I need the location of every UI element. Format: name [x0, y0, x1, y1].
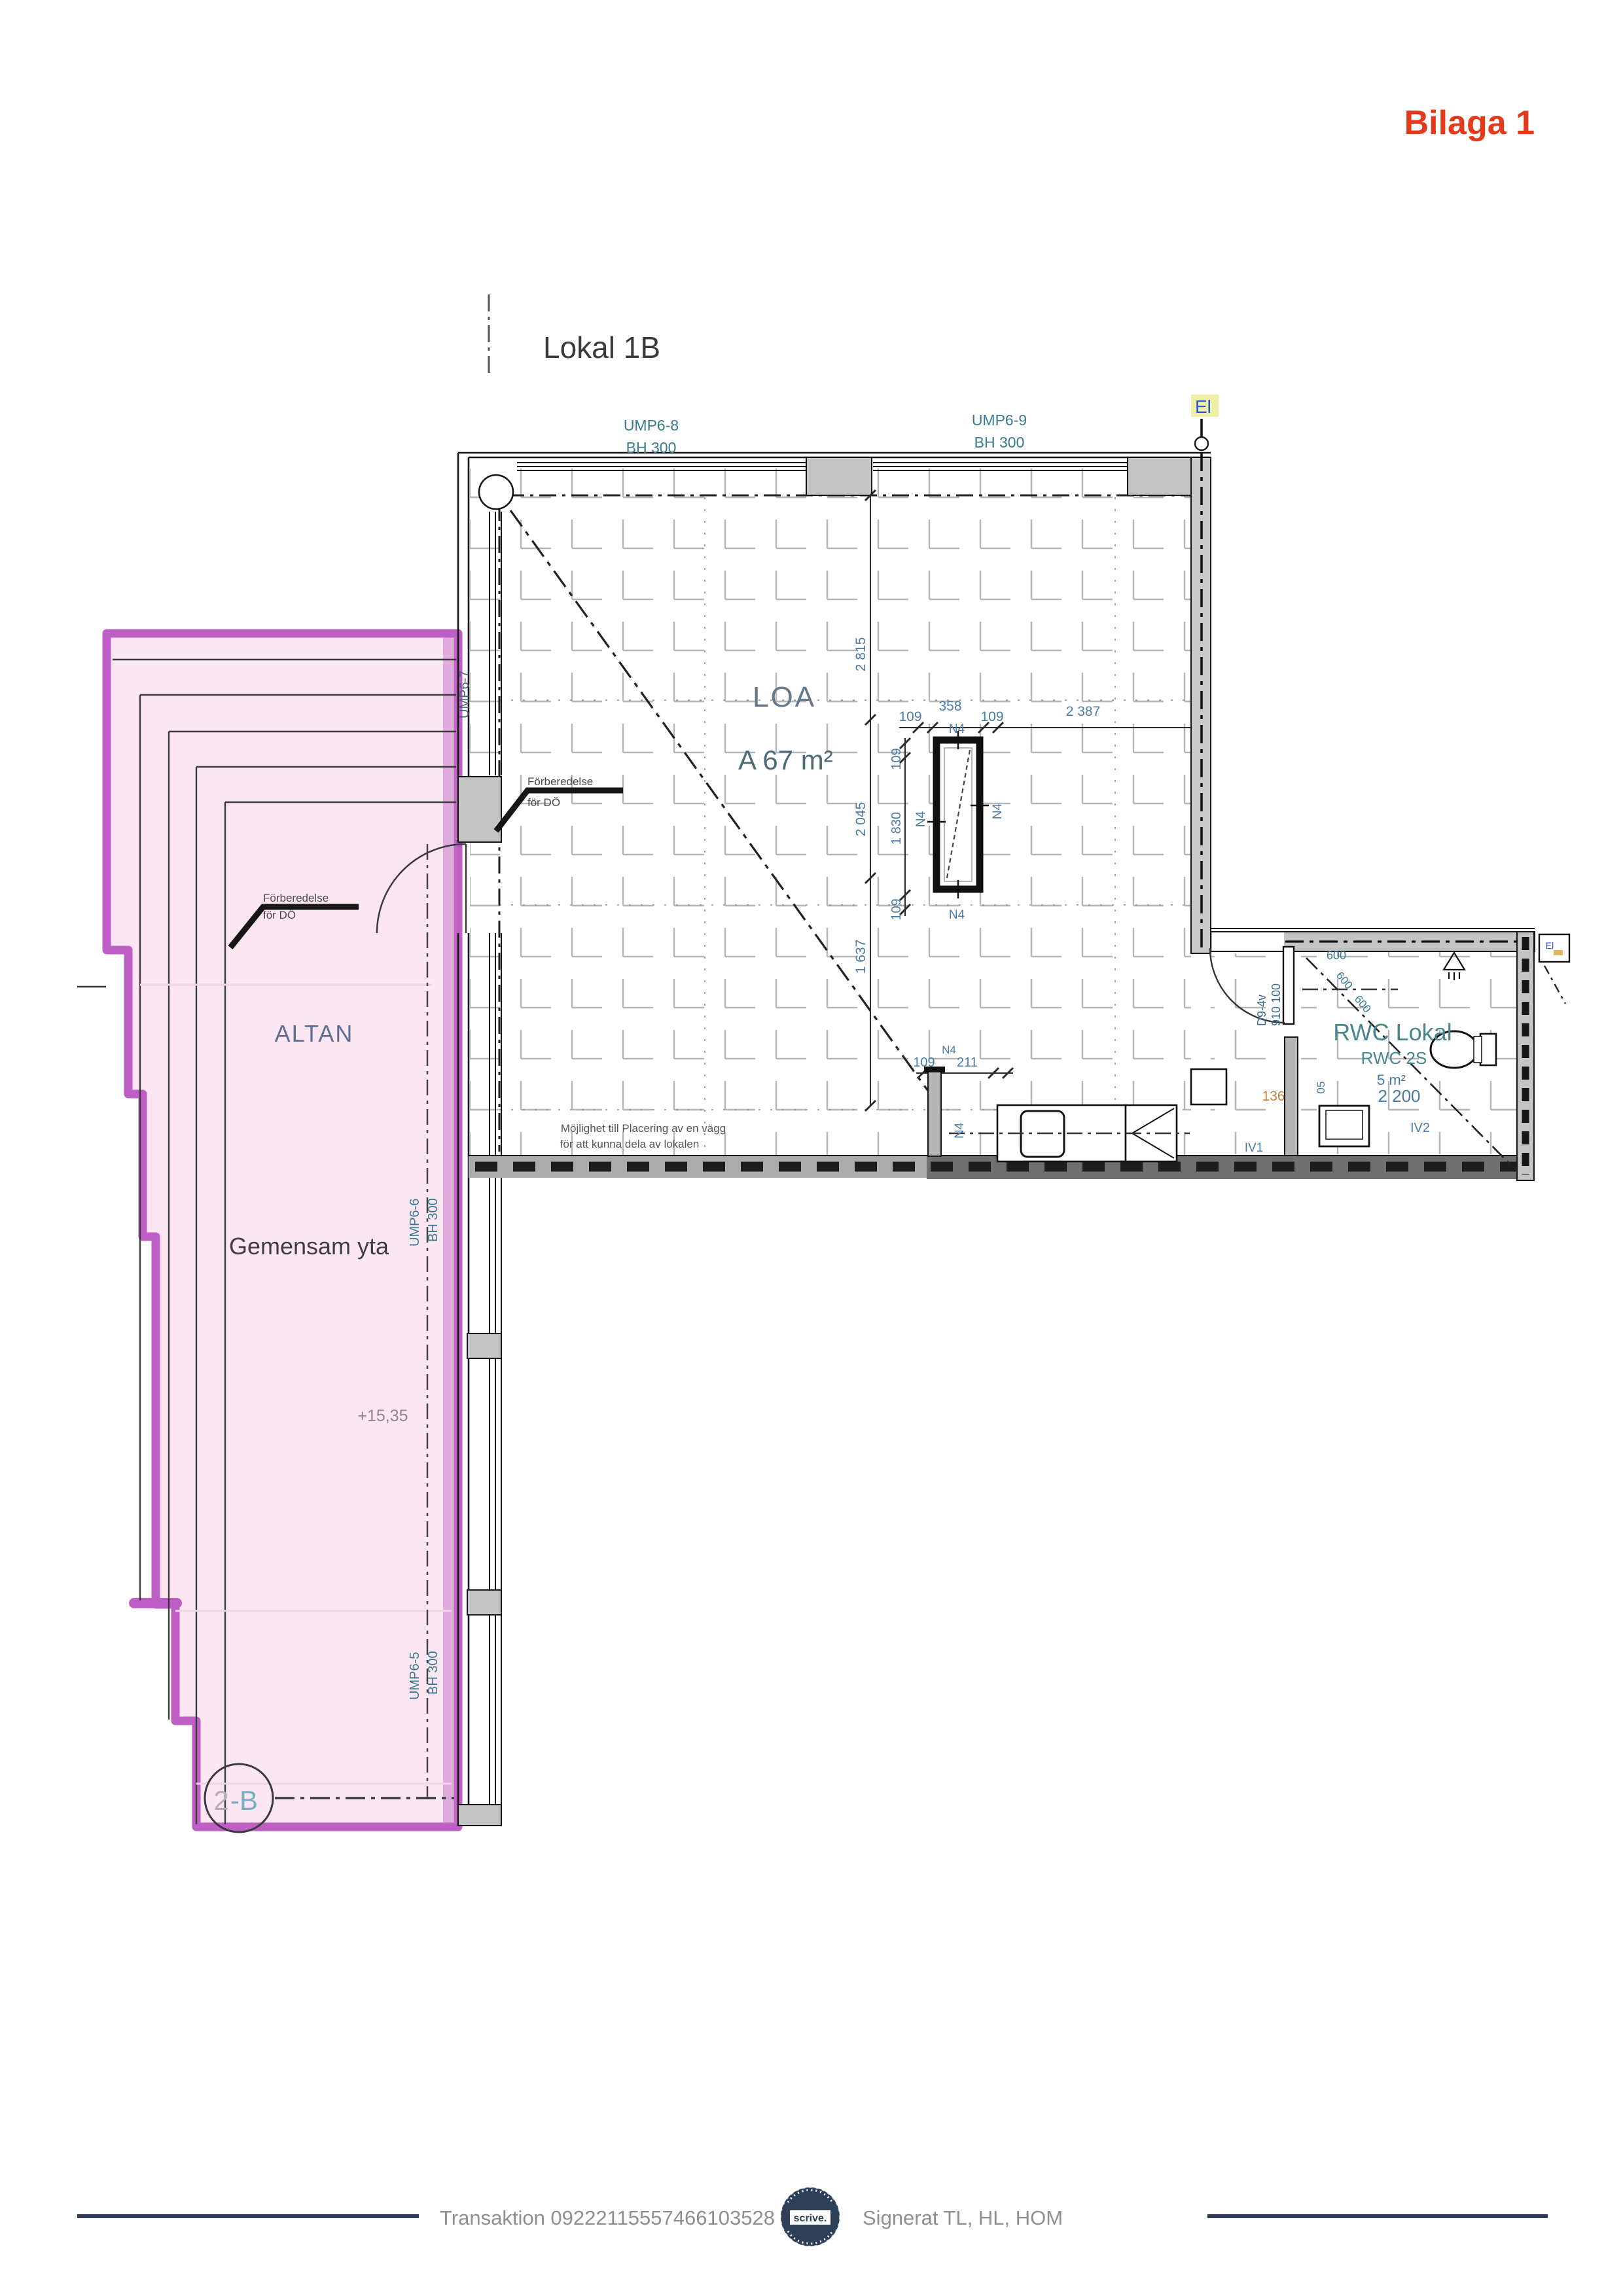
footer-transaction: Transaktion 09222115557466103528 — [440, 2206, 775, 2229]
svg-text:910 100: 910 100 — [1270, 983, 1283, 1026]
svg-text:1 830: 1 830 — [889, 812, 904, 845]
svg-text:211: 211 — [957, 1055, 978, 1070]
bilaga-badge: Bilaga 1 — [1404, 104, 1535, 142]
svg-text:2 200: 2 200 — [1378, 1086, 1420, 1106]
svg-text:N4: N4 — [949, 722, 965, 736]
svg-text:05: 05 — [1315, 1082, 1327, 1094]
svg-text:RWC Lokal: RWC Lokal — [1333, 1019, 1452, 1046]
exterior-el-box — [1539, 934, 1569, 962]
dim-136: 136 — [1262, 1089, 1285, 1104]
page-title: Lokal 1B — [543, 330, 660, 364]
svg-text:för att kunna dela av lokalen: för att kunna dela av lokalen — [560, 1138, 700, 1150]
svg-text:BH 300: BH 300 — [426, 1198, 440, 1242]
svg-text:UMP6-9: UMP6-9 — [972, 412, 1027, 429]
svg-text:IV2: IV2 — [1410, 1121, 1430, 1135]
svg-text:N4: N4 — [949, 908, 965, 922]
svg-text:Möjlighet till Placering av en: Möjlighet till Placering av en vägg — [561, 1122, 726, 1135]
svg-text:UMP6-5: UMP6-5 — [408, 1652, 422, 1700]
washbasin-symbol — [1319, 1106, 1369, 1146]
right-wall: El — [1191, 395, 1219, 953]
svg-text:BH 300: BH 300 — [626, 439, 677, 456]
terrace-area: Förberedelse för DÖ ALTAN Gemensam yta +… — [77, 633, 466, 1832]
n4-kitchen: N4 — [953, 1122, 967, 1139]
gemensam-label: Gemensam yta — [229, 1233, 389, 1260]
area-label: A 67 m² — [738, 745, 833, 775]
svg-text:2: 2 — [213, 1785, 228, 1816]
svg-text:109: 109 — [980, 709, 1003, 724]
drawing-title: Lokal 1B — [489, 294, 660, 373]
svg-text:2 815: 2 815 — [853, 637, 868, 672]
svg-text:1 637: 1 637 — [853, 940, 868, 974]
svg-text:N4: N4 — [991, 803, 1005, 819]
prep-label-terrace-1: Förberedelse — [263, 892, 329, 904]
svg-text:El: El — [1546, 940, 1554, 951]
footer: Transaktion 09222115557466103528 Signera… — [77, 2187, 1548, 2246]
svg-text:BH 300: BH 300 — [426, 1651, 440, 1695]
top-facade-labels: UMP6-8 BH 300 UMP6-9 BH 300 — [624, 412, 1027, 456]
prep-label-terrace-2: för DÖ — [263, 909, 296, 921]
corner-column — [479, 475, 513, 509]
svg-text:för DÖ: för DÖ — [527, 796, 560, 809]
svg-text:BH 300: BH 300 — [974, 434, 1025, 451]
footer-signed: Signerat TL, HL, HOM — [863, 2206, 1063, 2229]
svg-text:2 387: 2 387 — [1066, 704, 1101, 719]
pillar-block — [1191, 1069, 1226, 1104]
shaft — [927, 731, 989, 898]
level-label: +15,35 — [357, 1407, 408, 1425]
svg-text:UMP6-8: UMP6-8 — [624, 417, 679, 434]
svg-text:N4: N4 — [914, 811, 928, 827]
scrive-badge: scrive. — [781, 2187, 840, 2246]
svg-text:Förberedelse: Förberedelse — [527, 775, 593, 788]
footer-rule-left — [77, 2214, 419, 2218]
svg-text:109: 109 — [899, 709, 921, 724]
terrace-outline — [107, 633, 458, 1827]
appendix-page: Bilaga 1 Lokal 1B Förberedelse — [0, 0, 1623, 2296]
el-label: El — [1195, 397, 1211, 417]
loa-label: LOA — [753, 681, 816, 713]
svg-text:2 045: 2 045 — [853, 802, 868, 837]
iv1-label: IV1 — [1245, 1141, 1264, 1155]
svg-text:358: 358 — [938, 699, 961, 714]
svg-text:600: 600 — [1327, 949, 1346, 962]
svg-text:UMP6-6: UMP6-6 — [408, 1199, 422, 1246]
svg-text:D9-4v: D9-4v — [1255, 995, 1268, 1026]
svg-text:N4: N4 — [942, 1044, 956, 1056]
ump6-7-label: UMP6-7 — [457, 671, 472, 718]
svg-text:-B: -B — [230, 1785, 258, 1816]
scrive-badge-label: scrive. — [794, 2213, 827, 2224]
rwc-door-leaf — [1283, 947, 1294, 1024]
footer-rule-right — [1207, 2214, 1548, 2218]
svg-text:109: 109 — [889, 898, 904, 920]
svg-text:109: 109 — [889, 748, 904, 769]
svg-text:RWC 2S: RWC 2S — [1361, 1048, 1427, 1068]
altan-label: ALTAN — [275, 1020, 354, 1047]
